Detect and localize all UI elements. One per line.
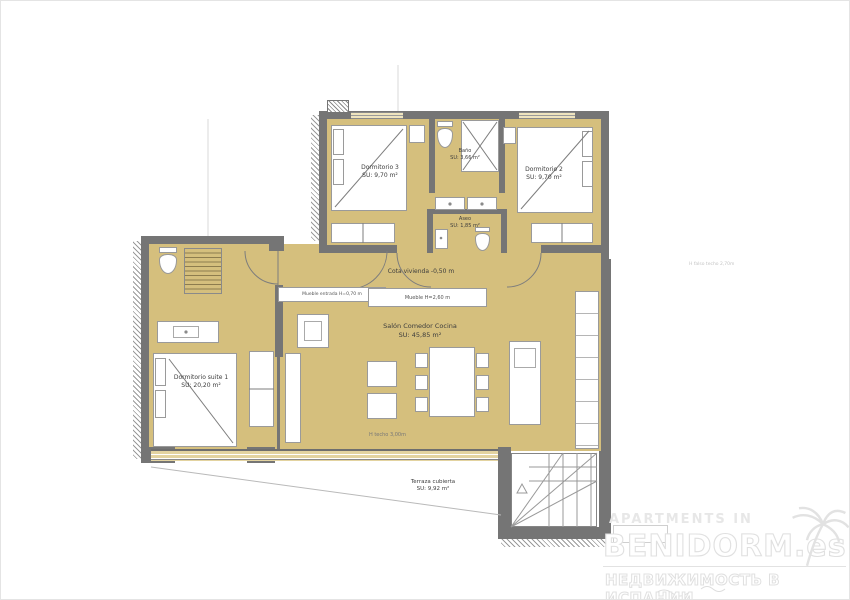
wardrobe	[531, 223, 593, 243]
kitchen-counter	[575, 291, 599, 449]
staircase	[511, 453, 597, 527]
room-name: Dormitorio 3	[361, 164, 399, 172]
chimney	[327, 100, 349, 113]
room-label-dormitorio-2: Dormitorio 2 SU: 9,70 m²	[525, 166, 563, 182]
wall	[601, 259, 611, 459]
coffee-table	[367, 361, 397, 387]
vanity-sink	[173, 326, 199, 338]
wall	[427, 209, 433, 253]
wall	[319, 245, 397, 253]
room-name: Aseo	[450, 216, 480, 223]
wall	[498, 447, 511, 539]
room-area: SU: 45,85 m²	[383, 331, 457, 340]
cota-vivienda-label: Cota vivienda -0,50 m	[388, 268, 454, 276]
room-area: SU: 9,92 m²	[411, 486, 455, 493]
room-area: SU: 20,20 m²	[174, 382, 228, 390]
pillow	[155, 390, 166, 418]
sink	[435, 229, 448, 249]
watermark-divider	[603, 566, 846, 567]
island-sink	[514, 348, 536, 368]
hatch-strip	[311, 115, 319, 241]
wall	[601, 111, 609, 259]
room-label-salon: Salón Comedor Cocina SU: 45,85 m²	[383, 322, 457, 340]
floorplan-canvas: Dormitorio 3 SU: 9,70 m² Baño SU: 3,66 m…	[0, 0, 850, 600]
chair	[415, 353, 428, 368]
vanity-sink	[435, 197, 465, 210]
room-area: SU: 1,85 m²	[450, 223, 480, 230]
pillow	[582, 161, 593, 187]
chair	[415, 375, 428, 390]
vanity-sink	[467, 197, 497, 210]
hatch-strip	[501, 539, 609, 547]
toilet	[437, 121, 453, 127]
wall	[498, 527, 611, 539]
pillow	[155, 358, 166, 386]
room-label-terraza: Terraza cubierta SU: 9,92 m²	[411, 479, 455, 494]
wall	[269, 236, 284, 251]
closet-shelves	[184, 248, 222, 294]
room-area: SU: 9,70 m²	[361, 172, 399, 180]
watermark-apartments-in: APARTMENTS IN	[609, 512, 753, 527]
room-label-dormitorio-3: Dormitorio 3 SU: 9,70 m²	[361, 164, 399, 180]
toilet	[159, 247, 177, 253]
chair	[415, 397, 428, 412]
room-area: SU: 3,66 m²	[450, 155, 480, 162]
wall	[541, 245, 609, 253]
armchair-cushion	[304, 321, 322, 341]
pillow	[582, 131, 593, 157]
h-falso-techo-label: H falso techo 2,70m	[689, 262, 734, 267]
room-area: SU: 9,70 m²	[525, 174, 563, 182]
sofa	[285, 353, 301, 443]
pillow	[333, 159, 344, 185]
room-name: Dormitorio suite 1	[174, 374, 228, 382]
shower	[461, 120, 499, 172]
room-label-suite: Dormitorio suite 1 SU: 20,20 m²	[174, 374, 228, 390]
wall	[277, 357, 280, 451]
chair	[476, 375, 489, 390]
wardrobe	[331, 223, 395, 243]
sliding-door-band	[151, 449, 498, 461]
nightstand	[409, 125, 425, 143]
pillow	[333, 129, 344, 155]
hatch-strip	[133, 241, 141, 459]
window	[351, 112, 403, 119]
dining-table	[429, 347, 475, 417]
h-techo-label: H techo 3,00m	[369, 432, 406, 438]
room-name: Baño	[450, 148, 480, 155]
watermark-russian: НЕДВИЖИМОСТЬ В ИСПАНИИ	[605, 571, 849, 600]
wall	[319, 111, 327, 246]
wall	[141, 236, 284, 244]
wall	[141, 236, 149, 463]
coffee-table	[367, 393, 397, 419]
watermark-benidorm: BENIDORM.es	[603, 529, 847, 564]
wardrobe	[249, 351, 274, 427]
chair	[476, 397, 489, 412]
window	[519, 112, 575, 119]
room-label-bano: Baño SU: 3,66 m²	[450, 148, 480, 162]
mueble-box: Mueble H=2,60 m	[368, 288, 487, 307]
wall	[501, 209, 507, 253]
nightstand	[503, 127, 516, 144]
room-name: Dormitorio 2	[525, 166, 563, 174]
chair	[476, 353, 489, 368]
room-name: Salón Comedor Cocina	[383, 322, 457, 331]
wall	[429, 119, 435, 193]
room-label-aseo: Aseo SU: 1,85 m²	[450, 216, 480, 230]
